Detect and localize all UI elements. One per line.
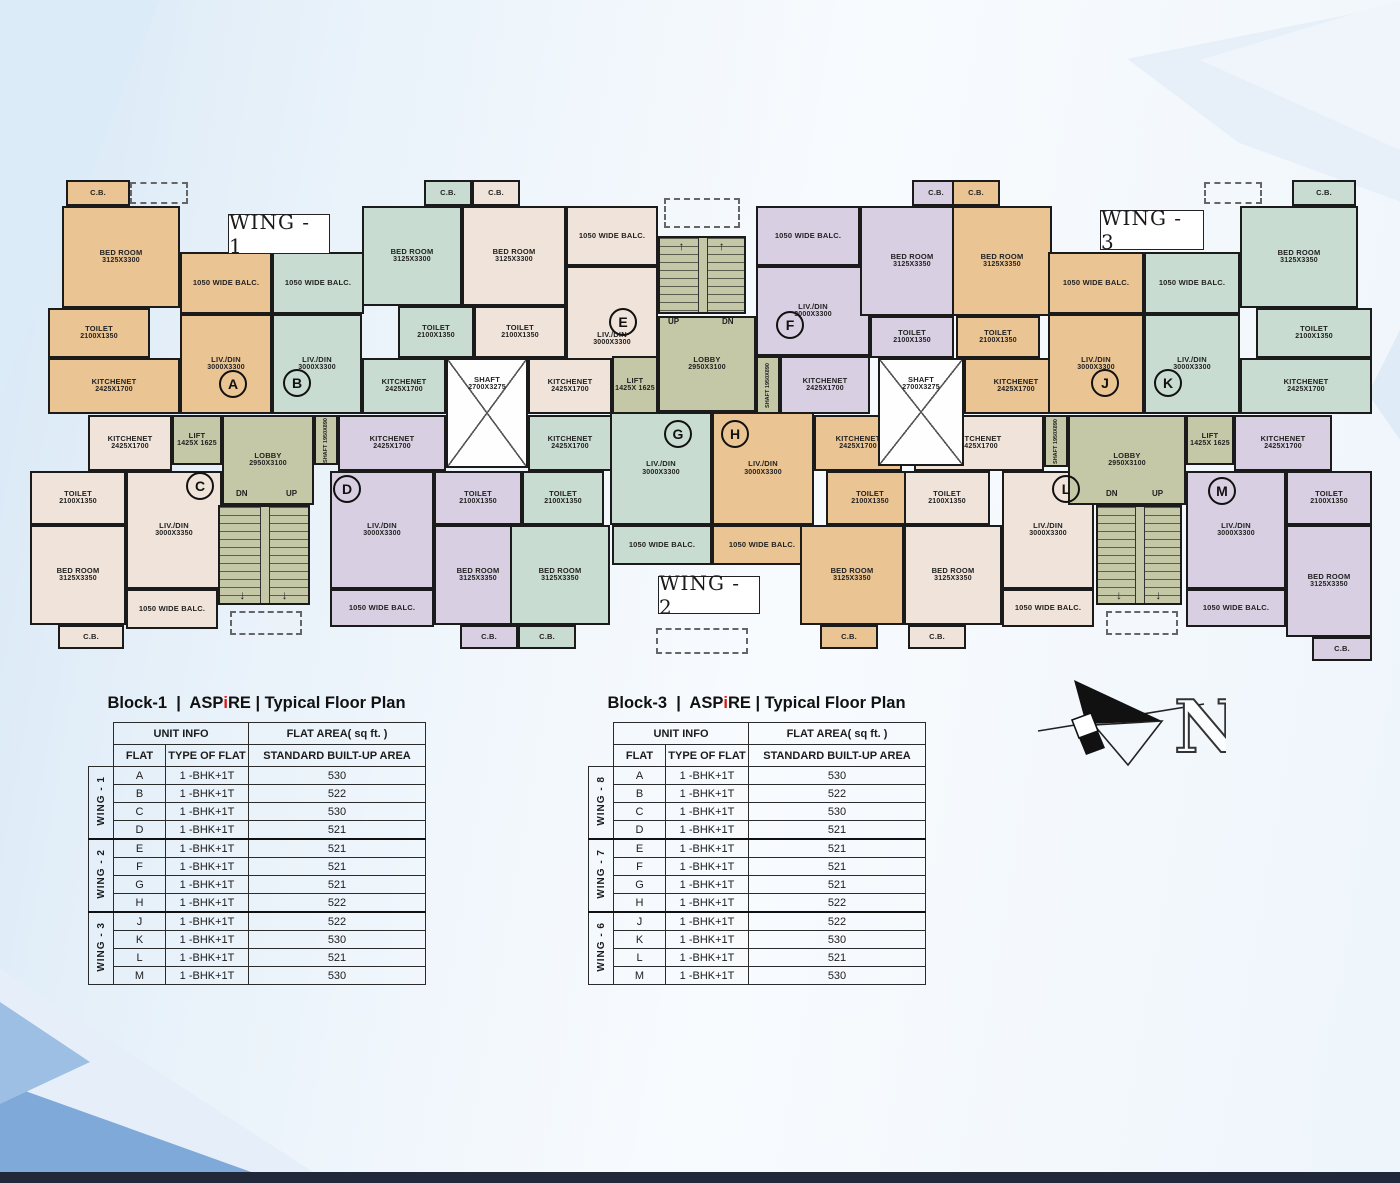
stair-rail: [1135, 507, 1145, 603]
table-title: Block-3 | ASPiRE | Typical Floor Plan: [588, 694, 925, 713]
room-toilet: TOILET2100X1350: [434, 471, 522, 525]
unit-circle-k: K: [1154, 369, 1182, 397]
table-cell: [89, 745, 114, 767]
table-cell: F: [614, 858, 666, 876]
room-lift: LIFT1425X 1625: [172, 415, 222, 465]
room-c-b: C.B.: [952, 180, 1000, 206]
stair-arrow-icon: ↑: [678, 239, 684, 253]
room-dimension: 3125X3350: [891, 261, 934, 270]
room-dimension: 3000X3300: [1217, 530, 1255, 539]
table-cell: 521: [249, 876, 426, 894]
room-liv-din: LIV./DIN3000X3300: [756, 266, 870, 356]
table-cell: 522: [249, 912, 426, 931]
table-cell: 521: [249, 949, 426, 967]
unit-circle-e: E: [609, 308, 637, 336]
room-kitchenet: KITCHENET2425X1700: [338, 415, 446, 471]
room-dimension: 2100X1350: [501, 332, 539, 341]
room-dimension: 3125X3350: [932, 575, 975, 584]
table-cell: 1 -BHK+1T: [166, 931, 249, 949]
room-lobby: LOBBY2950X3100: [658, 316, 756, 412]
room-dimension: 3000X3300: [1173, 364, 1211, 373]
room-bed-room: BED ROOM3125X3350: [904, 525, 1002, 625]
table-cell: TYPE OF FLAT: [166, 745, 249, 767]
room-liv-din: LIV./DIN3000X3300: [1048, 314, 1144, 414]
room-c-b: C.B.: [66, 180, 130, 206]
room-label: LIV./DIN3000X3300: [1029, 521, 1067, 539]
table-cell: 1 -BHK+1T: [166, 821, 249, 840]
room-toilet: TOILET2100X1350: [870, 316, 954, 358]
room-dimension: 3125X3300: [100, 257, 143, 266]
room-toilet: TOILET2100X1350: [1286, 471, 1372, 525]
room-toilet: TOILET2100X1350: [522, 471, 604, 525]
room-label: BED ROOM3125X3350: [57, 566, 100, 584]
room-label: BED ROOM3125X3300: [493, 247, 536, 265]
room-kitchenet: KITCHENET2425X1700: [780, 356, 870, 414]
entry-projection: [656, 628, 748, 654]
unit-circle-c: C: [186, 472, 214, 500]
table-cell: 521: [749, 839, 926, 858]
wing-title-wing-2: WING - 2: [658, 576, 760, 614]
room-label: BED ROOM3125X3300: [100, 248, 143, 266]
room-dimension: 2100X1350: [979, 337, 1017, 346]
unit-circle-m: M: [1208, 477, 1236, 505]
room-lobby: LOBBY2950X3100: [1068, 415, 1186, 505]
room-label: LIV./DIN3000X3300: [642, 459, 680, 477]
room-dimension: 3125X3350: [1308, 581, 1351, 590]
room-kitchenet: KITCHENET2425X1700: [1234, 415, 1332, 471]
table-cell: 1 -BHK+1T: [166, 912, 249, 931]
table-cell: K: [114, 931, 166, 949]
unit-info-table: UNIT INFOFLAT AREA( sq ft. )FLATTYPE OF …: [588, 722, 926, 985]
room-label: LIFT1425X 1625: [1190, 431, 1230, 449]
room-label: 1050 WIDE BALC.: [1203, 603, 1269, 612]
room-dimension: 3125X3300: [493, 256, 536, 265]
room-label: C.B.: [841, 632, 857, 641]
table-cell: 530: [749, 767, 926, 785]
room-liv-din: LIV./DIN3000X3300: [1144, 314, 1240, 414]
table-cell: M: [114, 967, 166, 985]
room-1050-wide-balc: 1050 WIDE BALC.: [330, 589, 434, 627]
room-bed-room: BED ROOM3125X3350: [510, 525, 610, 625]
room-c-b: C.B.: [472, 180, 520, 206]
room-c-b: C.B.: [424, 180, 472, 206]
table-cell: 522: [749, 785, 926, 803]
table-cell: 1 -BHK+1T: [666, 894, 749, 913]
staircase: ↓↓: [1096, 505, 1182, 605]
table-cell: 521: [749, 949, 926, 967]
stair-direction-label: DN: [1106, 489, 1118, 498]
room-toilet: TOILET2100X1350: [826, 471, 914, 525]
table-cell: 1 -BHK+1T: [666, 803, 749, 821]
room-label: LIFT1425X 1625: [177, 431, 217, 449]
room-bed-room: BED ROOM3125X3350: [1240, 206, 1358, 308]
table-cell: A: [614, 767, 666, 785]
page: { "plan": { "wall_color": "#1b1b1b", "pa…: [0, 0, 1400, 1183]
stair-rail: [698, 238, 708, 312]
table-cell: 530: [749, 931, 926, 949]
room-c-b: C.B.: [58, 625, 124, 649]
room-label: LIV./DIN3000X3300: [1217, 521, 1255, 539]
room-label: BED ROOM3125X3350: [539, 566, 582, 584]
vertical-shaft-label: SHAFT 1950X890: [765, 363, 771, 408]
room-dimension: 1425X 1625: [1190, 440, 1230, 449]
room-liv-din: LIV./DIN3000X3300: [272, 314, 362, 414]
room-label: 1050 WIDE BALC.: [629, 540, 695, 549]
room-liv-din: LIV./DIN3000X3300: [1186, 471, 1286, 589]
unit-circle-b: B: [283, 369, 311, 397]
wing-group-label: WING - 6: [589, 912, 614, 985]
room-toilet: TOILET2100X1350: [48, 308, 150, 358]
room-dimension: 3125X3350: [457, 575, 500, 584]
entry-projection: [130, 182, 188, 204]
table-cell: E: [614, 839, 666, 858]
table-cell: 1 -BHK+1T: [666, 949, 749, 967]
wing-group-label: WING - 3: [89, 912, 114, 985]
room-bed-room: BED ROOM3125X3300: [62, 206, 180, 308]
table-cell: 521: [749, 821, 926, 840]
table-cell: STANDARD BUILT-UP AREA: [249, 745, 426, 767]
table-cell: L: [614, 949, 666, 967]
table-cell: 1 -BHK+1T: [166, 858, 249, 876]
room-c-b: C.B.: [518, 625, 576, 649]
room-bed-room: BED ROOM3125X3350: [30, 525, 126, 625]
table-cell: 530: [249, 967, 426, 985]
room-label: KITCHENET2425X1700: [1284, 377, 1329, 395]
room-label: C.B.: [1316, 188, 1332, 197]
stair-arrow-icon: ↓: [282, 588, 288, 602]
stair-rail: [260, 507, 270, 603]
room-dimension: 2100X1350: [80, 333, 118, 342]
room-toilet: TOILET2100X1350: [474, 306, 566, 358]
room-label: LIFT1425X 1625: [615, 376, 655, 394]
table-cell: 530: [749, 967, 926, 985]
room-1050-wide-balc: 1050 WIDE BALC.: [1048, 252, 1144, 314]
staircase: ↓↓: [218, 505, 310, 605]
table-cell: 522: [249, 894, 426, 913]
table-cell: 530: [749, 803, 926, 821]
room-label: TOILET2100X1350: [544, 489, 582, 507]
wing-title-wing-1: WING - 1: [228, 214, 330, 254]
room-dimension: 3000X3300: [363, 530, 401, 539]
room-1050-wide-balc: 1050 WIDE BALC.: [712, 525, 812, 565]
table-cell: 530: [249, 803, 426, 821]
wing-group-label: WING - 2: [89, 839, 114, 912]
entry-projection: [1106, 611, 1178, 635]
room-label: C.B.: [481, 632, 497, 641]
north-label: N: [1174, 684, 1226, 769]
table-cell: 521: [749, 876, 926, 894]
room-label: KITCHENET2425X1700: [1261, 434, 1306, 452]
room-dimension: 2425X1700: [370, 443, 415, 452]
room-label: LIV./DIN3000X3300: [363, 521, 401, 539]
room-c-b: C.B.: [1292, 180, 1356, 206]
table-cell: K: [614, 931, 666, 949]
table-cell: [589, 723, 614, 745]
table-title: Block-1 | ASPiRE | Typical Floor Plan: [88, 694, 425, 713]
table-cell: [89, 723, 114, 745]
table-cell: 522: [749, 894, 926, 913]
room-liv-din: LIV./DIN3000X3300: [180, 314, 272, 414]
room-dimension: 2425X1700: [1284, 386, 1329, 395]
room-c-b: C.B.: [1312, 637, 1372, 661]
shaft-label: SHAFT2700X3275: [448, 375, 526, 393]
stair-direction-label: DN: [236, 489, 248, 498]
table-cell: 521: [249, 858, 426, 876]
table-cell: J: [114, 912, 166, 931]
room-liv-din: LIV./DIN3000X3300: [610, 412, 712, 525]
table-cell: D: [614, 821, 666, 840]
table-cell: H: [614, 894, 666, 913]
room-dimension: 2100X1350: [893, 337, 931, 346]
room-label: KITCHENET2425X1700: [836, 434, 881, 452]
table-cell: F: [114, 858, 166, 876]
table-cell: 522: [249, 785, 426, 803]
table-cell: 1 -BHK+1T: [666, 821, 749, 840]
stair-direction-label: UP: [668, 317, 679, 326]
room-dimension: 3125X3350: [539, 575, 582, 584]
unit-circle-d: D: [333, 475, 361, 503]
table-cell: D: [114, 821, 166, 840]
room-label: KITCHENET2425X1700: [370, 434, 415, 452]
room-label: TOILET2100X1350: [1295, 324, 1333, 342]
north-compass-icon: N: [1036, 668, 1226, 773]
table-cell: 1 -BHK+1T: [166, 949, 249, 967]
bottom-bar: [0, 1172, 1400, 1183]
room-dimension: 3125X3350: [1278, 257, 1321, 266]
room-dimension: 3000X3300: [744, 469, 782, 478]
room-kitchenet: KITCHENET2425X1700: [528, 415, 612, 471]
room-label: TOILET2100X1350: [459, 489, 497, 507]
room-bed-room: BED ROOM3125X3350: [1286, 525, 1372, 637]
room-label: BED ROOM3125X3350: [891, 252, 934, 270]
room-dimension: 2425X1700: [803, 385, 848, 394]
room-label: LIV./DIN3000X3300: [207, 355, 245, 373]
room-bed-room: BED ROOM3125X3350: [434, 525, 522, 625]
room-dimension: 2100X1350: [1295, 333, 1333, 342]
table-cell: L: [114, 949, 166, 967]
table-cell: 1 -BHK+1T: [166, 767, 249, 785]
room-label: BED ROOM3125X3350: [1278, 248, 1321, 266]
floor-plan: C.B.BED ROOM3125X33001050 WIDE BALC.TOIL…: [0, 0, 1400, 1183]
table-cell: FLAT: [614, 745, 666, 767]
table-cell: FLAT AREA( sq ft. ): [749, 723, 926, 745]
room-kitchenet: KITCHENET2425X1700: [88, 415, 172, 471]
stair-direction-label: DN: [722, 317, 734, 326]
room-bed-room: BED ROOM3125X3350: [800, 525, 904, 625]
table-cell: [589, 745, 614, 767]
room-label: KITCHENET2425X1700: [108, 434, 153, 452]
staircase: ↑↑: [658, 236, 746, 314]
room-label: 1050 WIDE BALC.: [139, 604, 205, 613]
stair-arrow-icon: ↓: [1155, 588, 1161, 602]
room-label: BED ROOM3125X3350: [831, 566, 874, 584]
room-dimension: 3000X3300: [642, 469, 680, 478]
room-1050-wide-balc: 1050 WIDE BALC.: [126, 589, 218, 629]
room-label: C.B.: [83, 632, 99, 641]
room-lift: LIFT1425X 1625: [612, 356, 658, 414]
room-label: LOBBY2950X3100: [688, 355, 726, 373]
entry-projection: [230, 611, 302, 635]
table-cell: 521: [749, 858, 926, 876]
room-dimension: 3125X3350: [831, 575, 874, 584]
room-c-b: C.B.: [820, 625, 878, 649]
room-label: C.B.: [929, 632, 945, 641]
table-cell: 1 -BHK+1T: [666, 785, 749, 803]
stair-arrow-icon: ↓: [239, 588, 245, 602]
room-1050-wide-balc: 1050 WIDE BALC.: [566, 206, 658, 266]
room-dimension: 3000X3350: [155, 530, 193, 539]
wing-group-label: WING - 1: [89, 767, 114, 840]
shaft-label: SHAFT2700X3275: [880, 375, 962, 393]
room-label: LIV./DIN3000X3300: [1173, 355, 1211, 373]
table-cell: 1 -BHK+1T: [166, 967, 249, 985]
room-label: TOILET2100X1350: [59, 489, 97, 507]
table-cell: UNIT INFO: [114, 723, 249, 745]
shaft-box: SHAFT2700X3275: [446, 358, 528, 468]
unit-circle-f: F: [776, 311, 804, 339]
room-dimension: 3125X3350: [981, 261, 1024, 270]
room-dimension: 2425X1700: [92, 386, 137, 395]
room-label: 1050 WIDE BALC.: [1159, 278, 1225, 287]
table-cell: UNIT INFO: [614, 723, 749, 745]
room-1050-wide-balc: 1050 WIDE BALC.: [1186, 589, 1286, 627]
room-label: LIV./DIN3000X3350: [155, 521, 193, 539]
room-kitchenet: KITCHENET2425X1700: [48, 358, 180, 414]
table-cell: 521: [249, 821, 426, 840]
table-cell: 522: [749, 912, 926, 931]
room-dimension: 2950X3100: [688, 364, 726, 373]
room-dimension: 2100X1350: [59, 498, 97, 507]
table-cell: 521: [249, 839, 426, 858]
unit-circle-a: A: [219, 370, 247, 398]
room-label: KITCHENET2425X1700: [548, 434, 593, 452]
vertical-shaft: SHAFT 1950X890: [756, 356, 780, 414]
room-dimension: 1425X 1625: [177, 440, 217, 449]
room-label: KITCHENET2425X1700: [382, 377, 427, 395]
room-label: KITCHENET2425X1700: [803, 376, 848, 394]
room-dimension: 2425X1700: [548, 386, 593, 395]
unit-circle-g: G: [664, 420, 692, 448]
table-cell: C: [614, 803, 666, 821]
table-cell: J: [614, 912, 666, 931]
vertical-shaft: SHAFT 1950X890: [1044, 415, 1068, 467]
stair-direction-label: UP: [1152, 489, 1163, 498]
stair-arrow-icon: ↑: [719, 239, 725, 253]
room-label: TOILET2100X1350: [851, 489, 889, 507]
room-label: C.B.: [539, 632, 555, 641]
table-cell: 1 -BHK+1T: [666, 858, 749, 876]
room-kitchenet: KITCHENET2425X1700: [362, 358, 446, 414]
entry-projection: [1204, 182, 1262, 204]
table-cell: 1 -BHK+1T: [166, 785, 249, 803]
unit-table-block-2: Block-3 | ASPiRE | Typical Floor PlanUNI…: [588, 694, 925, 985]
room-label: C.B.: [440, 188, 456, 197]
table-cell: M: [614, 967, 666, 985]
table-cell: B: [614, 785, 666, 803]
room-label: 1050 WIDE BALC.: [193, 278, 259, 287]
room-c-b: C.B.: [460, 625, 518, 649]
entry-projection: [664, 198, 740, 228]
room-label: TOILET2100X1350: [1310, 489, 1348, 507]
unit-table-block-1: Block-1 | ASPiRE | Typical Floor PlanUNI…: [88, 694, 425, 985]
room-label: KITCHENET2425X1700: [92, 377, 137, 395]
unit-circle-j: J: [1091, 369, 1119, 397]
room-label: C.B.: [928, 188, 944, 197]
room-toilet: TOILET2100X1350: [1256, 308, 1372, 358]
room-label: BED ROOM3125X3300: [391, 247, 434, 265]
room-label: LOBBY2950X3100: [249, 451, 287, 469]
room-label: 1050 WIDE BALC.: [285, 278, 351, 287]
room-dimension: 2100X1350: [544, 498, 582, 507]
room-label: 1050 WIDE BALC.: [1015, 603, 1081, 612]
room-label: TOILET2100X1350: [928, 489, 966, 507]
room-label: TOILET2100X1350: [979, 328, 1017, 346]
room-label: 1050 WIDE BALC.: [775, 231, 841, 240]
room-dimension: 2425X1700: [836, 443, 881, 452]
table-cell: 1 -BHK+1T: [666, 767, 749, 785]
room-dimension: 2100X1350: [851, 498, 889, 507]
table-cell: 1 -BHK+1T: [666, 876, 749, 894]
room-kitchenet: KITCHENET2425X1700: [528, 358, 612, 414]
unit-circle-l: L: [1052, 475, 1080, 503]
room-label: KITCHENET2425X1700: [548, 377, 593, 395]
room-lift: LIFT1425X 1625: [1186, 415, 1234, 465]
table-cell: E: [114, 839, 166, 858]
room-label: KITCHENET2425X1700: [994, 377, 1039, 395]
room-label: LOBBY2950X3100: [1108, 451, 1146, 469]
room-toilet: TOILET2100X1350: [956, 316, 1040, 358]
room-dimension: 2100X1350: [928, 498, 966, 507]
table-cell: STANDARD BUILT-UP AREA: [749, 745, 926, 767]
room-dimension: 3125X3300: [391, 256, 434, 265]
room-bed-room: BED ROOM3125X3350: [860, 206, 964, 316]
room-toilet: TOILET2100X1350: [904, 471, 990, 525]
room-label: 1050 WIDE BALC.: [349, 603, 415, 612]
room-label: BED ROOM3125X3350: [981, 252, 1024, 270]
room-label: C.B.: [488, 188, 504, 197]
room-1050-wide-balc: 1050 WIDE BALC.: [180, 252, 272, 314]
room-1050-wide-balc: 1050 WIDE BALC.: [1144, 252, 1240, 314]
room-label: C.B.: [1334, 644, 1350, 653]
room-dimension: 2950X3100: [249, 460, 287, 469]
room-dimension: 2100X1350: [459, 498, 497, 507]
room-label: TOILET2100X1350: [417, 323, 455, 341]
table-cell: 1 -BHK+1T: [666, 839, 749, 858]
room-1050-wide-balc: 1050 WIDE BALC.: [1002, 589, 1094, 627]
room-bed-room: BED ROOM3125X3300: [362, 206, 462, 306]
table-cell: 530: [249, 767, 426, 785]
table-cell: C: [114, 803, 166, 821]
unit-circle-h: H: [721, 420, 749, 448]
room-1050-wide-balc: 1050 WIDE BALC.: [756, 206, 860, 266]
room-dimension: 2100X1350: [417, 332, 455, 341]
vertical-shaft-label: SHAFT 1950X890: [1053, 419, 1059, 464]
room-dimension: 2425X1700: [108, 443, 153, 452]
room-label: BED ROOM3125X3350: [1308, 572, 1351, 590]
vertical-shaft-label: SHAFT 1950X890: [323, 418, 329, 463]
table-cell: TYPE OF FLAT: [666, 745, 749, 767]
table-cell: G: [114, 876, 166, 894]
table-cell: 1 -BHK+1T: [666, 967, 749, 985]
stair-arrow-icon: ↓: [1116, 588, 1122, 602]
shaft-dimension: 2700X3275: [880, 384, 962, 393]
room-label: BED ROOM3125X3350: [457, 566, 500, 584]
table-cell: H: [114, 894, 166, 913]
unit-info-table: UNIT INFOFLAT AREA( sq ft. )FLATTYPE OF …: [88, 722, 426, 985]
room-bed-room: BED ROOM3125X3350: [952, 206, 1052, 316]
room-dimension: 3000X3300: [593, 339, 631, 348]
room-label: C.B.: [968, 188, 984, 197]
